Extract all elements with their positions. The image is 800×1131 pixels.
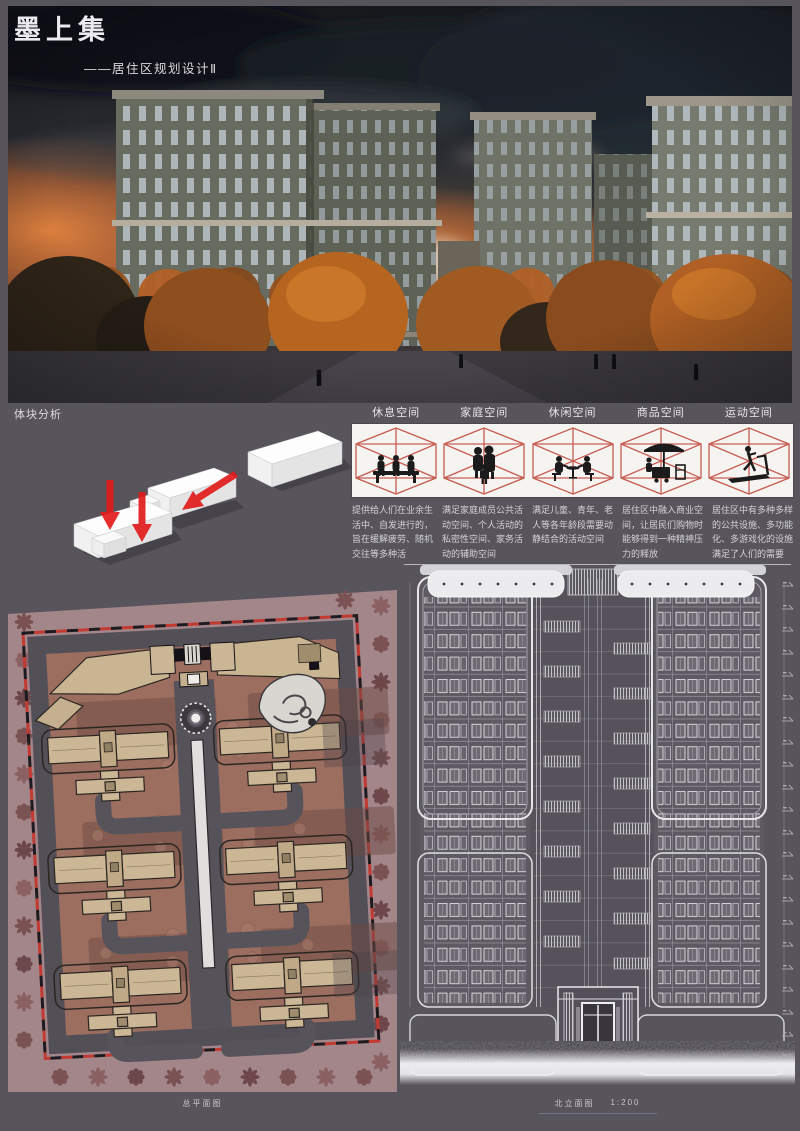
site-plan-caption: 总平面图: [8, 1098, 397, 1109]
elevation-caption: 北立面图: [554, 1098, 594, 1109]
space-labels-row: 休息空间 家庭空间 休闲空间 商品空间 运动空间: [352, 404, 793, 422]
space-label: 家庭空间: [440, 404, 528, 422]
family-group-icon: [441, 427, 527, 495]
space-description: 提供给人们在业余生活中、自发进行的，旨在缓解疲劳、随机交往等多种活: [352, 503, 433, 561]
space-description: 满足家庭成员公共活动空间、个人活动的私密性空间、家务活动的辅助空间: [442, 503, 523, 561]
bench-people-icon: [353, 427, 439, 495]
elevation-drawing: [400, 563, 795, 1085]
page-title: 墨上集: [14, 8, 110, 47]
space-label: 运动空间: [705, 404, 793, 422]
elevation-caption-underline: [539, 1113, 657, 1114]
space-cell: [705, 424, 793, 497]
treadmill-icon: [706, 427, 792, 495]
space-cell: [617, 424, 705, 497]
space-descriptions-row: 提供给人们在业余生活中、自发进行的，旨在缓解疲劳、随机交往等多种活 满足家庭成员…: [352, 503, 793, 561]
space-cell: [528, 424, 616, 497]
ground-trees-band: [400, 1041, 795, 1085]
space-icon-panel: [352, 424, 793, 497]
space-label: 休闲空间: [528, 404, 616, 422]
massing-diagram: [30, 412, 360, 570]
massing-blocks: [74, 431, 352, 565]
entrance: [558, 987, 638, 1045]
space-description: 居住区中融入商业空间，让居民们购物时能够得到一种精神压力的释放: [622, 503, 703, 561]
site-plan-inner: [23, 614, 397, 1058]
page-subtitle: ——居住区规划设计Ⅱ: [84, 58, 218, 77]
space-description: 满足儿童、青年、老人等各年龄段需要动静结合的活动空间: [532, 503, 613, 561]
table-gathering-icon: [530, 427, 616, 495]
tower-right: [638, 577, 784, 1075]
elevation-scale-label: 1:200: [610, 1098, 640, 1109]
space-label: 休息空间: [352, 404, 440, 422]
space-label: 商品空间: [617, 404, 705, 422]
space-cell: [352, 424, 440, 497]
site-plan: [8, 588, 397, 1092]
market-stall-icon: [618, 427, 704, 495]
elevation-caption-row: 北立面图 1:200: [400, 1098, 795, 1109]
space-cell: [440, 424, 528, 497]
space-description: 居住区中有多种多样的公共设施、多功能化、多游戏化的设施满足了人们的需要: [712, 503, 793, 561]
poster: 墨上集 ——居住区规划设计Ⅱ 体块分析: [0, 0, 800, 1131]
